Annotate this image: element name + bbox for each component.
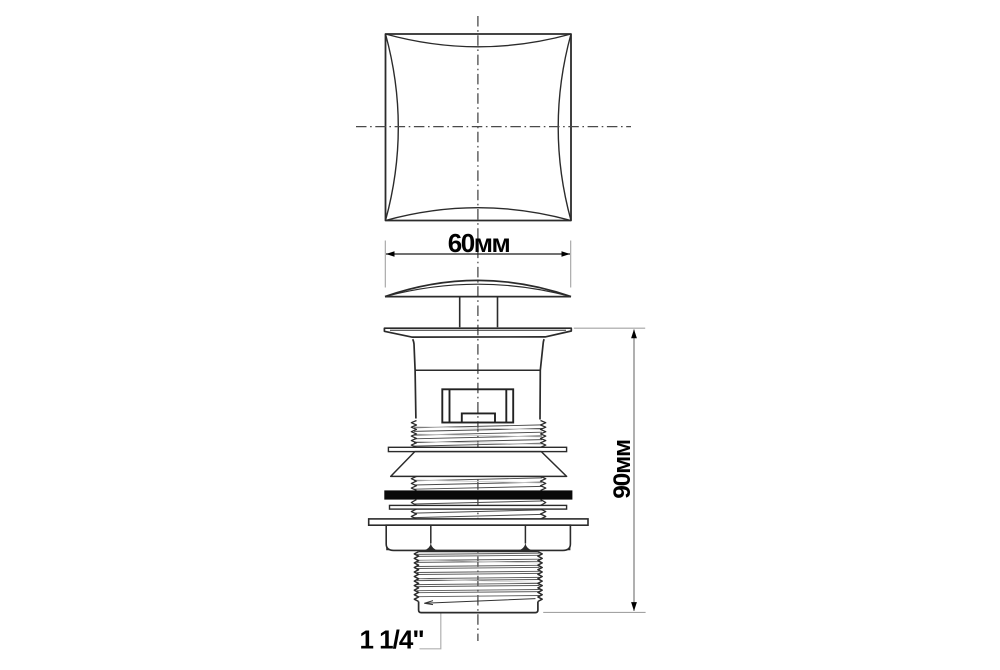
svg-text:60мм: 60мм: [448, 228, 510, 258]
svg-text:1 1/4": 1 1/4": [360, 625, 424, 655]
svg-text:90мм: 90мм: [609, 440, 636, 499]
